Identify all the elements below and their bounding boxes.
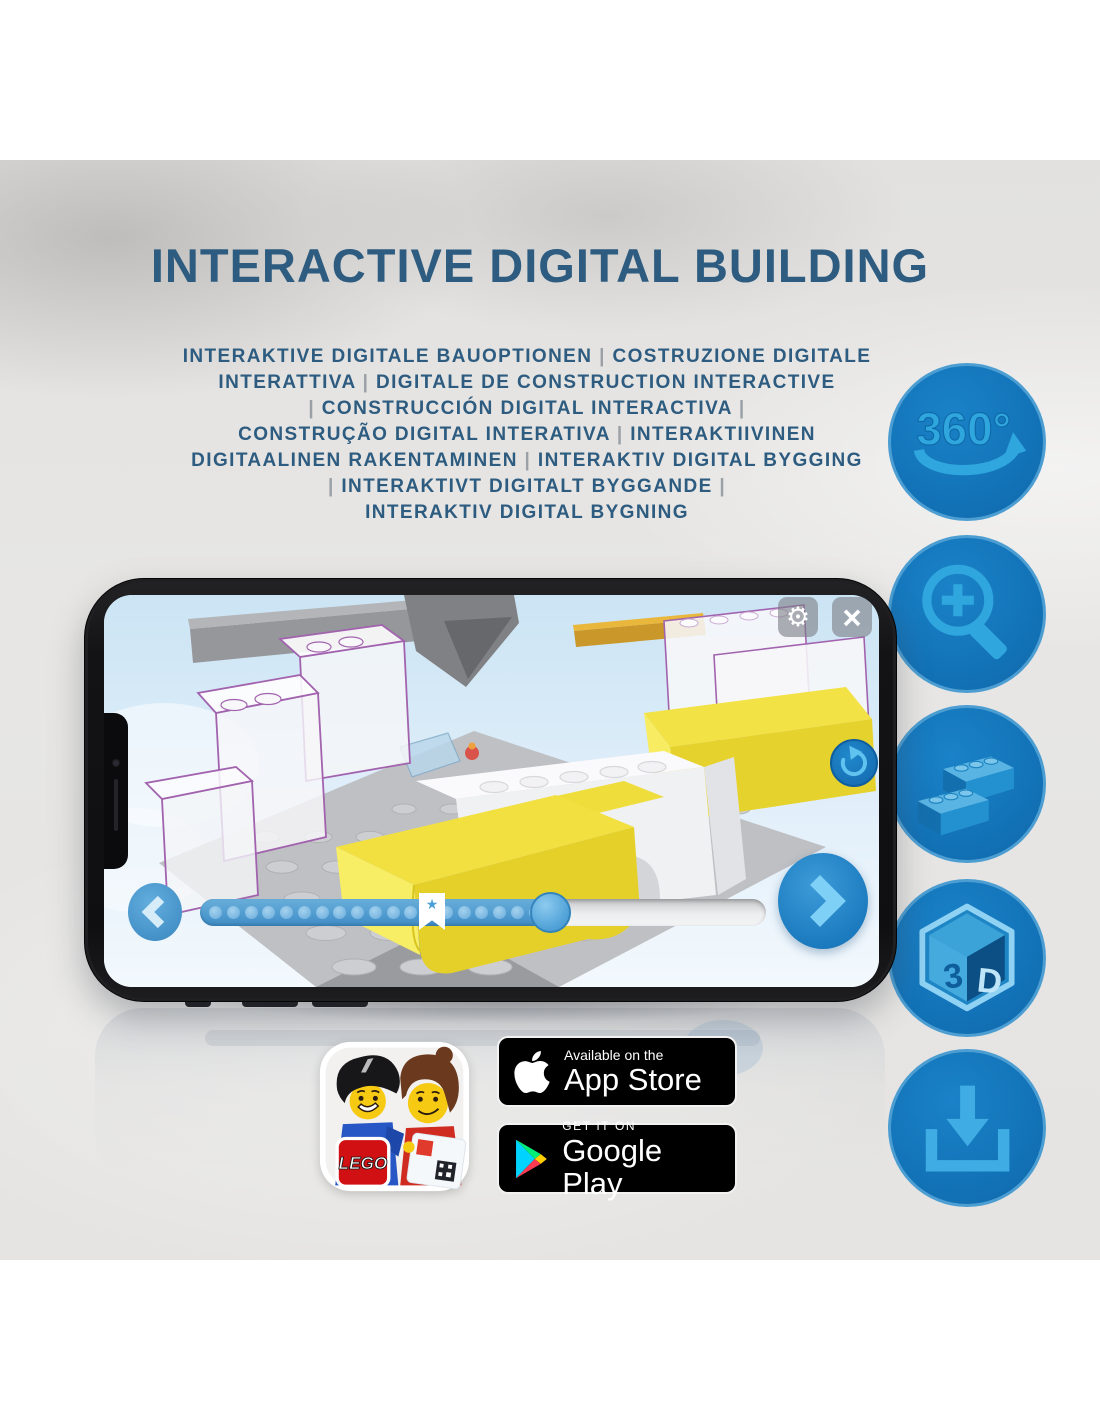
- phone-notch: [104, 713, 128, 869]
- feature-360-rotation: 360°: [888, 363, 1046, 521]
- feature-download: [888, 1049, 1046, 1207]
- progress-dot: [280, 906, 293, 919]
- feature-3d-view: 3 D: [888, 879, 1046, 1037]
- lego-logo: LEGO: [337, 1138, 389, 1186]
- rotate-view-button[interactable]: [830, 739, 878, 787]
- marketing-image: INTERACTIVE DIGITAL BUILDING INTERAKTIVE…: [0, 0, 1100, 1422]
- settings-button[interactable]: ⚙: [778, 597, 818, 637]
- progress-dot: [262, 906, 275, 919]
- app-store-tagline: Available on the: [564, 1047, 702, 1063]
- app-screen: ⚙ ×: [104, 595, 879, 987]
- progress-dot: [404, 906, 417, 919]
- progress-dot: [245, 906, 258, 919]
- build-progress-bar[interactable]: ★: [200, 899, 766, 926]
- phone-reflection: [95, 1008, 885, 1183]
- 360-rotation-icon: 360°: [904, 379, 1030, 505]
- google-play-icon: [513, 1137, 549, 1181]
- feature-zoom: [888, 535, 1046, 693]
- google-play-title: Google Play: [562, 1134, 723, 1200]
- subtitle-line: DIGITAALINEN RAKENTAMINEN | INTERAKTIV D…: [22, 448, 1032, 474]
- subtitle-line: | INTERAKTIVT DIGITALT BYGGANDE |: [22, 474, 1032, 500]
- smartphone: ⚙ ×: [84, 578, 897, 1002]
- google-play-badge[interactable]: GET IT ON Google Play: [497, 1123, 737, 1194]
- next-step-button[interactable]: [778, 853, 868, 949]
- progress-dot: [458, 906, 471, 919]
- brick-icon: [904, 721, 1030, 847]
- feature-bricks: [888, 705, 1046, 863]
- subtitle-line: | CONSTRUCCIÓN DIGITAL INTERACTIVA |: [22, 396, 1032, 422]
- progress-fill: [200, 899, 551, 926]
- rotate-icon: [835, 744, 873, 782]
- apple-logo-icon: [513, 1048, 551, 1096]
- progress-dot: [387, 906, 400, 919]
- svg-text:LEGO: LEGO: [339, 1153, 388, 1173]
- close-icon: ×: [842, 601, 861, 634]
- google-play-tagline: GET IT ON: [562, 1118, 723, 1134]
- subtitle-line: INTERAKTIV DIGITAL BYGNING: [22, 500, 1032, 526]
- progress-dot: [475, 906, 488, 919]
- speaker-slit: [114, 779, 118, 831]
- instructions-card: [406, 1133, 466, 1190]
- close-button[interactable]: ×: [832, 597, 872, 637]
- previous-step-button[interactable]: [128, 883, 182, 941]
- progress-dot: [511, 906, 524, 919]
- page-title: INTERACTIVE DIGITAL BUILDING: [0, 238, 1080, 293]
- download-icon: [904, 1065, 1030, 1191]
- subtitle-block: INTERAKTIVE DIGITALE BAUOPTIONEN | COSTR…: [22, 344, 1032, 526]
- subtitle-line: INTERATTIVA | DIGITALE DE CONSTRUCTION I…: [22, 370, 1032, 396]
- qr-code: [435, 1160, 457, 1182]
- app-store-title: App Store: [564, 1063, 702, 1096]
- svg-text:D: D: [975, 961, 1004, 1001]
- progress-dot: [227, 906, 240, 919]
- progress-dot: [316, 906, 329, 919]
- 3d-view-icon: 3 D: [904, 895, 1030, 1021]
- subtitle-line: CONSTRUÇÃO DIGITAL INTERATIVA | INTERAKT…: [22, 422, 1032, 448]
- gear-icon: ⚙: [786, 602, 810, 633]
- zoom-in-icon: [904, 551, 1030, 677]
- subtitle-line: INTERAKTIVE DIGITALE BAUOPTIONEN | COSTR…: [22, 344, 1032, 370]
- progress-dot: [369, 906, 382, 919]
- progress-dot: [333, 906, 346, 919]
- chevron-right-icon: [778, 853, 868, 949]
- progress-slider-handle[interactable]: [530, 892, 571, 933]
- lego-3d-scene: [104, 595, 879, 987]
- chevron-left-icon: [128, 883, 182, 941]
- camera-dot: [112, 759, 120, 767]
- progress-dot: [298, 906, 311, 919]
- progress-dot: [351, 906, 364, 919]
- app-store-badge[interactable]: Available on the App Store: [497, 1036, 737, 1107]
- progress-dot: [493, 906, 506, 919]
- lego-app-icon[interactable]: LEGO: [318, 1040, 471, 1193]
- progress-dot: [209, 906, 222, 919]
- svg-text:360°: 360°: [916, 403, 1011, 454]
